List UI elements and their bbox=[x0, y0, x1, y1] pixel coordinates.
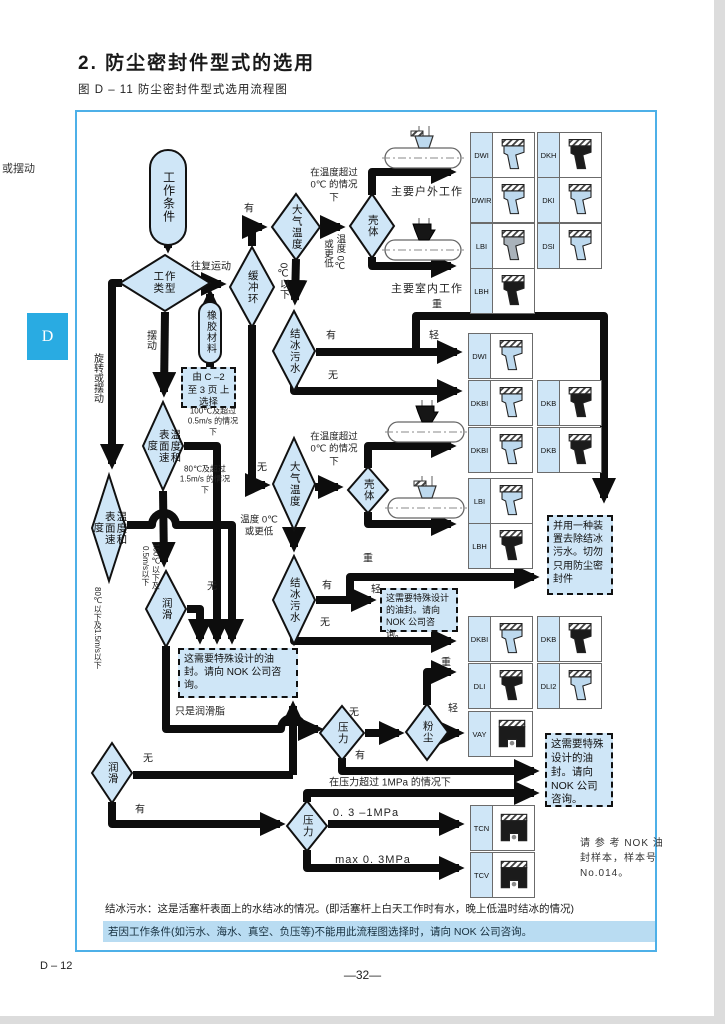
node-label-work-condition: 工作条件 bbox=[161, 171, 174, 223]
edge-label-yes: 有 bbox=[355, 750, 365, 763]
node-label-dust: 粉尘 bbox=[421, 721, 433, 744]
cylinder-outdoor2-illustration bbox=[385, 400, 467, 442]
seal-profile-icon bbox=[492, 430, 532, 470]
seal-row: DKB bbox=[538, 617, 601, 661]
edge-label-yes: 有 bbox=[135, 804, 145, 817]
page-edge-right bbox=[714, 0, 725, 1024]
document-page: 2. 防尘密封件型式的选用 图 D – 11 防尘密封件型式选用流程图 或摆动 … bbox=[0, 0, 725, 1024]
seal-name: DKI bbox=[538, 178, 560, 222]
edge-label-indoor: 主要室内工作 bbox=[391, 282, 463, 296]
node-label-atm-temp-1: 大气温度 bbox=[290, 204, 302, 250]
seal-table-vay: VAY bbox=[468, 711, 533, 757]
seal-table-dkbi-1: DKBI bbox=[468, 380, 533, 426]
note-box-remove-device: 并用一种装置去除结冰污水。切勿只用防尘密封件 bbox=[547, 515, 613, 595]
edge-label-yes: 有 bbox=[244, 203, 254, 216]
seal-name: DKBI bbox=[469, 381, 491, 425]
node-label-pressure-2: 压力 bbox=[301, 815, 313, 838]
edge-label-outdoor: 主要户外工作 bbox=[391, 185, 463, 199]
node-label-temp-speed-1: 温度和表面速度 bbox=[146, 427, 181, 465]
edge-label-below-100c: 100℃以下及0.5m/s以下 bbox=[140, 534, 161, 598]
seal-table-dkb-2: DKB bbox=[537, 427, 602, 473]
edge-label-no: 无 bbox=[207, 581, 217, 594]
edge-label-grease-only: 只是润滑脂 bbox=[175, 706, 225, 719]
seal-name: TCV bbox=[471, 853, 493, 897]
edge-label-rotate-or-swing: 旋转或摆动 bbox=[91, 353, 104, 403]
icy-water-note: 结冰污水：这是活塞杆表面上的水结冰的情况。(即活塞杆上白天工作时有水，晚上低温时… bbox=[105, 901, 574, 916]
edge-label-temp-0c-or-lower: 温度 0℃ 或更低 bbox=[236, 515, 282, 540]
seal-name: DWIR bbox=[471, 178, 493, 222]
seal-name: DKB bbox=[538, 617, 560, 661]
node-label-pressure-1: 压力 bbox=[336, 722, 348, 745]
seal-row: DLI2 bbox=[538, 664, 601, 708]
footer-page-number: —32— bbox=[0, 968, 725, 982]
seal-name: DWI bbox=[469, 334, 491, 378]
cylinder-outdoor-illustration bbox=[382, 126, 464, 168]
seal-name: LBH bbox=[469, 524, 491, 568]
seal-name: DSI bbox=[538, 224, 560, 268]
seal-profile-icon bbox=[561, 383, 601, 423]
seal-profile-icon bbox=[492, 619, 532, 659]
seal-row: DWI bbox=[469, 334, 532, 378]
edge-label-no: 无 bbox=[349, 707, 359, 720]
seal-table-dkb-3: DKB bbox=[537, 616, 602, 662]
seal-name: DKB bbox=[538, 381, 560, 425]
edge-label-light: 轻 bbox=[448, 703, 458, 716]
node-label-rubber-material: 橡胶材料 bbox=[205, 310, 216, 354]
seal-row: DLI bbox=[469, 664, 532, 708]
node-label-icy-water-1: 结冰污水 bbox=[288, 328, 300, 374]
edge-label-no: 无 bbox=[320, 617, 330, 630]
seal-row: TCV bbox=[471, 853, 534, 897]
seal-profile-icon bbox=[494, 808, 534, 848]
node-label-housing-1: 壳体 bbox=[366, 215, 378, 238]
edge-label-max-03mpa: max 0. 3MPa bbox=[335, 853, 411, 867]
seal-table-tcn: TCN bbox=[470, 805, 535, 851]
node-label-work-type: 工作类型 bbox=[153, 271, 177, 294]
node-label-lubrication-2: 润滑 bbox=[106, 762, 118, 785]
seal-profile-icon bbox=[561, 619, 601, 659]
seal-row: DKH bbox=[538, 133, 601, 177]
edge-label-no: 无 bbox=[143, 753, 153, 766]
seal-row: DKI bbox=[538, 177, 601, 222]
seal-name: DKB bbox=[538, 428, 560, 472]
edge-label-heavy: 重 bbox=[432, 299, 442, 312]
seal-profile-icon bbox=[492, 526, 532, 566]
seal-profile-icon bbox=[561, 226, 601, 266]
seal-table-dkbi-3: DKBI bbox=[468, 616, 533, 662]
seal-row: DKBI bbox=[469, 428, 532, 472]
seal-row: DKBI bbox=[469, 381, 532, 425]
note-box-special-design-2: 这需要特殊设计的油封。请向 NOK 公司咨询。 bbox=[380, 588, 458, 632]
seal-table-dli2: DLI2 bbox=[537, 663, 602, 709]
seal-name: DLI2 bbox=[538, 664, 560, 708]
edge-label-cond-80c: 80℃及超过 1.5m/s 的情况下 bbox=[178, 464, 232, 495]
edge-label-temp-0c-or-lower: 温度 0℃ 或更低 bbox=[321, 231, 346, 275]
seal-profile-icon bbox=[561, 180, 601, 220]
cylinder-indoor2-illustration bbox=[385, 476, 467, 518]
seal-row: DSI bbox=[538, 224, 601, 268]
seal-profile-icon bbox=[494, 226, 534, 266]
note-box-select-from-page: 由 C –2 至 3 页 上选择 bbox=[181, 367, 236, 408]
seal-table-lbi-lbh-2: LBI LBH bbox=[468, 478, 533, 569]
seal-table-dkh-dki: DKH DKI bbox=[537, 132, 602, 223]
seal-name: DKBI bbox=[469, 428, 491, 472]
seal-row: DWI bbox=[471, 133, 534, 177]
seal-name: DKBI bbox=[469, 617, 491, 661]
seal-row: LBH bbox=[469, 523, 532, 568]
seal-table-dsi: DSI bbox=[537, 223, 602, 269]
edge-label-yes: 有 bbox=[322, 580, 332, 593]
seal-profile-icon bbox=[492, 666, 532, 706]
node-label-temp-speed-2: 温度和表面速度 bbox=[92, 509, 127, 547]
seal-table-dli: DLI bbox=[468, 663, 533, 709]
seal-row: DKB bbox=[538, 381, 601, 425]
edge-label-03-1mpa: 0. 3 –1MPa bbox=[333, 806, 399, 820]
edge-label-yes: 有 bbox=[326, 330, 336, 343]
seal-name: LBH bbox=[471, 269, 493, 313]
edge-label-over-1mpa: 在压力超过 1MPa 的情况下 bbox=[329, 777, 451, 790]
edge-label-light: 轻 bbox=[429, 330, 439, 343]
edge-label-swing: 摆动 bbox=[144, 330, 157, 350]
seal-name: VAY bbox=[469, 712, 491, 756]
seal-profile-icon bbox=[561, 666, 601, 706]
seal-name: LBI bbox=[469, 479, 491, 523]
seal-profile-icon bbox=[494, 855, 534, 895]
seal-name: DLI bbox=[469, 664, 491, 708]
seal-table-dkb-1: DKB bbox=[537, 380, 602, 426]
node-label-housing-2: 壳体 bbox=[362, 479, 374, 502]
consult-note-highlighted: 若因工作条件(如污水、海水、真空、负压等)不能用此流程图选择时，请向 NOK 公… bbox=[103, 921, 655, 942]
seal-profile-icon bbox=[492, 481, 532, 521]
seal-profile-icon bbox=[492, 336, 532, 376]
edge-label-no: 无 bbox=[328, 370, 338, 383]
seal-table-lbi-lbh: LBI LBH bbox=[470, 223, 535, 314]
edge-label-below-0c: 0℃以下 bbox=[277, 263, 290, 300]
cylinder-indoor-illustration bbox=[382, 218, 464, 260]
edge-label-below-80c: 80℃以下及1.5m/s以下 bbox=[92, 568, 102, 688]
seal-row: DKB bbox=[538, 428, 601, 472]
seal-profile-icon bbox=[494, 135, 534, 175]
seal-name: LBI bbox=[471, 224, 493, 268]
note-box-special-design-3: 这需要特殊设计的油封。请向 NOK 公司咨询。 bbox=[545, 733, 613, 807]
edge-label-no: 无 bbox=[257, 462, 267, 475]
seal-row: LBI bbox=[469, 479, 532, 523]
seal-table-dkbi-2: DKBI bbox=[468, 427, 533, 473]
seal-row: DKBI bbox=[469, 617, 532, 661]
seal-row: LBH bbox=[471, 268, 534, 313]
node-label-lubrication-1: 润滑 bbox=[160, 598, 172, 621]
note-box-special-design-1: 这需要特殊设计的油封。请向 NOK 公司咨询。 bbox=[178, 648, 298, 698]
node-label-icy-water-2: 结冰污水 bbox=[288, 577, 300, 623]
seal-row: VAY bbox=[469, 712, 532, 756]
edge-label-heavy: 重 bbox=[363, 553, 373, 566]
seal-name: DKH bbox=[538, 133, 560, 177]
edge-label-cond-100c: 100℃及超过 0.5m/s 的情况下 bbox=[184, 406, 242, 437]
seal-profile-icon bbox=[492, 383, 532, 423]
edge-label-above-0c: 在温度超过 0℃ 的情况下 bbox=[307, 167, 361, 204]
node-label-atm-temp-2: 大气温度 bbox=[288, 461, 300, 507]
seal-name: TCN bbox=[471, 806, 493, 850]
seal-table-dwi-dwir: DWI DWIR bbox=[470, 132, 535, 223]
nok-reference-note: 请 参 考 NOK 油封样本，样本号 No.014。 bbox=[580, 836, 672, 881]
seal-row: LBI bbox=[471, 224, 534, 268]
seal-profile-icon bbox=[561, 135, 601, 175]
seal-table-dwi-2: DWI bbox=[468, 333, 533, 379]
seal-profile-icon bbox=[494, 180, 534, 220]
seal-profile-icon bbox=[494, 271, 534, 311]
edge-label-reciprocating: 往复运动 bbox=[191, 261, 231, 274]
edge-label-heavy: 重 bbox=[441, 657, 451, 670]
node-label-buffer-ring: 缓冲环 bbox=[246, 270, 258, 305]
seal-profile-icon bbox=[561, 430, 601, 470]
seal-row: TCN bbox=[471, 806, 534, 850]
seal-row: DWIR bbox=[471, 177, 534, 222]
seal-profile-icon bbox=[492, 714, 532, 754]
edge-label-above-0c: 在温度超过 0℃ 的情况下 bbox=[307, 431, 361, 468]
page-edge-bottom bbox=[0, 1016, 725, 1024]
seal-name: DWI bbox=[471, 133, 493, 177]
seal-table-tcv: TCV bbox=[470, 852, 535, 898]
